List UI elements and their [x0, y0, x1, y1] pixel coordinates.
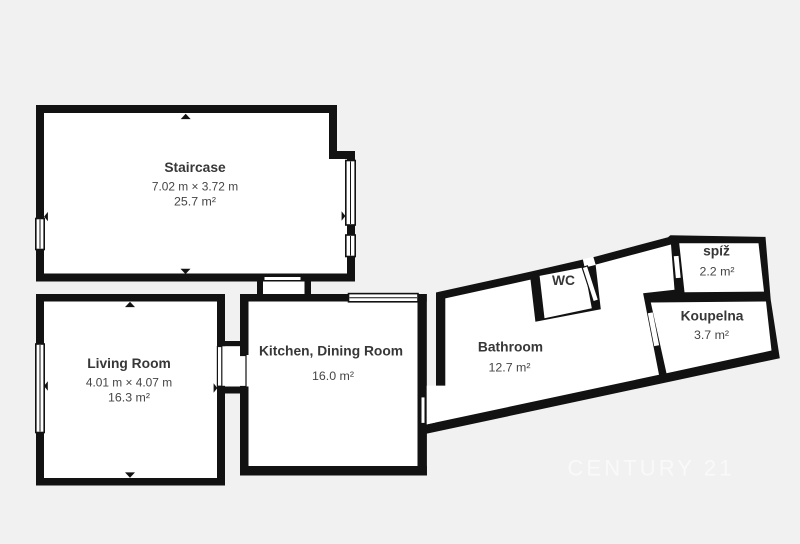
svg-text:Staircase: Staircase: [164, 160, 226, 175]
svg-text:WC: WC: [552, 273, 575, 288]
svg-text:spíž: spíž: [703, 244, 730, 259]
svg-text:2.2 m²: 2.2 m²: [699, 264, 734, 278]
svg-text:Kitchen, Dining Room: Kitchen, Dining Room: [259, 343, 403, 358]
svg-text:CENTURY 21: CENTURY 21: [567, 456, 734, 481]
svg-text:25.7 m²: 25.7 m²: [174, 195, 216, 209]
svg-text:16.0 m²: 16.0 m²: [312, 369, 354, 383]
svg-text:7.02 m × 3.72 m: 7.02 m × 3.72 m: [152, 179, 238, 193]
svg-text:12.7 m²: 12.7 m²: [488, 360, 530, 374]
svg-text:16.3 m²: 16.3 m²: [108, 390, 150, 404]
svg-text:4.01 m × 4.07 m: 4.01 m × 4.07 m: [86, 376, 172, 390]
svg-text:3.7 m²: 3.7 m²: [694, 328, 729, 342]
svg-text:Living Room: Living Room: [87, 356, 171, 371]
svg-text:Bathroom: Bathroom: [478, 340, 543, 355]
svg-text:Koupelna: Koupelna: [681, 309, 744, 324]
